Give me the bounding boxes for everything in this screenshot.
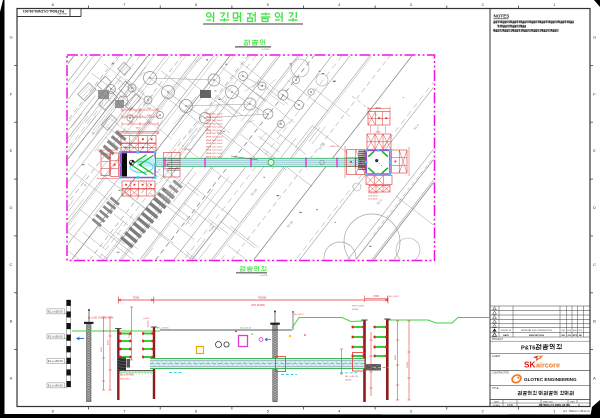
- svg-text:STA.2+28: STA.2+28: [330, 145, 340, 148]
- svg-text:Ø508 T=12 L=6.0: Ø508 T=12 L=6.0: [206, 120, 223, 122]
- svg-text:DATE: DATE: [503, 334, 509, 337]
- svg-text:B: B: [593, 319, 596, 324]
- svg-text:9200: 9200: [136, 128, 142, 130]
- svg-text:NOTES: NOTES: [494, 14, 510, 19]
- svg-text:SCALE: SCALE: [493, 404, 501, 407]
- svg-text:CONTRACTOR: CONTRACTOR: [492, 372, 509, 375]
- svg-text:EL.(+)45.00: EL.(+)45.00: [48, 359, 63, 363]
- svg-text:APPROVAL FOR CONSTRUCTION: APPROVAL FOR CONSTRUCTION: [521, 329, 552, 332]
- svg-text:Ø508 T=12 L=6.0: Ø508 T=12 L=6.0: [206, 150, 223, 152]
- svg-text:7500: 7500: [129, 332, 131, 338]
- svg-text:SK: SK: [524, 361, 535, 370]
- svg-text:STA.0+00: STA.0+00: [182, 148, 192, 151]
- svg-text:1200 2400: 1200 2400: [368, 196, 378, 198]
- svg-text:Ø508 T=12 L=6.0: Ø508 T=12 L=6.0: [206, 140, 223, 142]
- svg-text:E: E: [593, 148, 596, 153]
- svg-text:S=1/300: S=1/300: [261, 49, 270, 51]
- svg-text:Ø508 T=12 L=6.0: Ø508 T=12 L=6.0: [206, 123, 223, 125]
- svg-text:EL.(+)55. S=28±00-0.5%: EL.(+)55. S=28±00-0.5%: [88, 318, 113, 320]
- svg-text:C: C: [10, 262, 13, 267]
- svg-text:DWG NO.: DWG NO.: [57, 12, 67, 14]
- svg-text:EL(+)52.0: EL(+)52.0: [389, 296, 399, 298]
- svg-text:(EL.(+)44.70): (EL.(+)44.70): [345, 376, 358, 378]
- svg-text:3600: 3600: [147, 108, 151, 110]
- svg-text:REV: REV: [570, 401, 575, 403]
- svg-text:Ø508 T=12 L=6.0: Ø508 T=12 L=6.0: [206, 113, 223, 115]
- svg-text:(EL.+48.00): (EL.+48.00): [157, 327, 169, 329]
- svg-text:TITLE: TITLE: [492, 387, 499, 390]
- svg-text:Ø508 T=12 L=6.0: Ø508 T=12 L=6.0: [206, 127, 223, 129]
- svg-text:DESCRIPTION: DESCRIPTION: [529, 335, 544, 337]
- svg-text:P.S.K: P.S.K: [567, 330, 571, 332]
- svg-text:7000: 7000: [133, 295, 140, 299]
- svg-text:PROJECT: PROJECT: [492, 338, 504, 341]
- svg-text:3600: 3600: [147, 122, 151, 124]
- svg-text:(D600): (D600): [352, 309, 359, 311]
- svg-text:3600: 3600: [129, 108, 133, 110]
- svg-text:9000: 9000: [395, 354, 397, 360]
- svg-text:8000: 8000: [375, 107, 381, 110]
- svg-text:G: G: [9, 34, 12, 39]
- svg-text:aircore: aircore: [536, 361, 560, 370]
- svg-text:(+)56.0: (+)56.0: [143, 318, 150, 320]
- svg-text:EL(+)55.1: EL(+)55.1: [294, 314, 304, 316]
- svg-text:Ø508 T=12 L=6.0: Ø508 T=12 L=6.0: [206, 130, 223, 132]
- svg-text:(EL.(+)44.98): (EL.(+)44.98): [120, 375, 134, 377]
- svg-text:GL(+)52.00: GL(+)52.00: [240, 327, 252, 329]
- svg-text:W8.0 H7.5: W8.0 H7.5: [120, 379, 131, 381]
- svg-text:B: B: [10, 319, 13, 324]
- svg-text:CMK: CMK: [562, 330, 565, 332]
- svg-text:S=1/300: S=1/300: [260, 275, 268, 277]
- svg-text:EL.(+)50.00: EL.(+)50.00: [48, 335, 63, 339]
- svg-text:Ø508 T=12 L=6.0: Ø508 T=12 L=6.0: [206, 143, 223, 145]
- svg-text:S.H.K: S.H.K: [573, 330, 577, 332]
- svg-text:3600: 3600: [129, 115, 133, 117]
- svg-text:1/150: 1/150: [507, 404, 514, 407]
- svg-text:EL.(+)40.00: EL.(+)40.00: [48, 384, 63, 388]
- svg-text:C: C: [593, 262, 596, 267]
- svg-text:E: E: [10, 148, 13, 153]
- svg-text:SIZE: SIZE: [494, 401, 499, 403]
- svg-text:43000: 43000: [258, 295, 267, 299]
- svg-text:2000: 2000: [376, 132, 382, 134]
- svg-text:1200 2400: 1200 2400: [368, 193, 378, 195]
- svg-text:3600: 3600: [129, 122, 133, 124]
- svg-text:A: A: [10, 376, 13, 381]
- svg-text:D: D: [10, 205, 13, 210]
- svg-text:P&T6: P&T6: [521, 345, 535, 351]
- svg-text:2024.01.14: 2024.01.14: [501, 330, 512, 332]
- svg-text:Ø508 T=12 L=6.0: Ø508 T=12 L=6.0: [206, 146, 223, 148]
- svg-text:(A1 : 594mm x 841mm): (A1 : 594mm x 841mm): [563, 409, 590, 413]
- svg-text:5000: 5000: [101, 346, 103, 352]
- svg-text:Ø508 T=12 L=6.0: Ø508 T=12 L=6.0: [206, 117, 223, 119]
- svg-text:(2600): (2600): [345, 380, 352, 382]
- svg-text:Ø508 T=12 L=6.0: Ø508 T=12 L=6.0: [206, 133, 223, 135]
- svg-text:12000: 12000: [407, 361, 409, 368]
- svg-text:Ø508 T=12 L=6.0: Ø508 T=12 L=6.0: [206, 153, 223, 155]
- svg-text:8000: 8000: [108, 339, 110, 345]
- svg-text:EL.(+)55.00: EL.(+)55.00: [48, 310, 63, 314]
- svg-text:G: G: [593, 34, 596, 39]
- svg-text:Ø508 T=12 L=6.0: Ø508 T=12 L=6.0: [206, 156, 223, 158]
- svg-text:1200 2400: 1200 2400: [368, 199, 378, 201]
- svg-text:Ø508 T=12 L=6.0: Ø508 T=12 L=6.0: [206, 137, 223, 139]
- svg-text:CLIENT: CLIENT: [492, 355, 501, 358]
- svg-text:(P.D 41600): (P.D 41600): [251, 303, 265, 307]
- svg-text:D: D: [593, 205, 596, 210]
- svg-text:3600: 3600: [147, 115, 151, 117]
- svg-text:GLOTEC ENGINEERING: GLOTEC ENGINEERING: [524, 377, 577, 382]
- svg-text:4700: 4700: [373, 294, 379, 298]
- svg-text:SGP D=508: SGP D=508: [352, 306, 364, 308]
- svg-text:A: A: [593, 376, 596, 381]
- svg-text:P&T6IDA-CV-DWG-08-001: P&T6IDA-CV-DWG-08-001: [539, 403, 571, 407]
